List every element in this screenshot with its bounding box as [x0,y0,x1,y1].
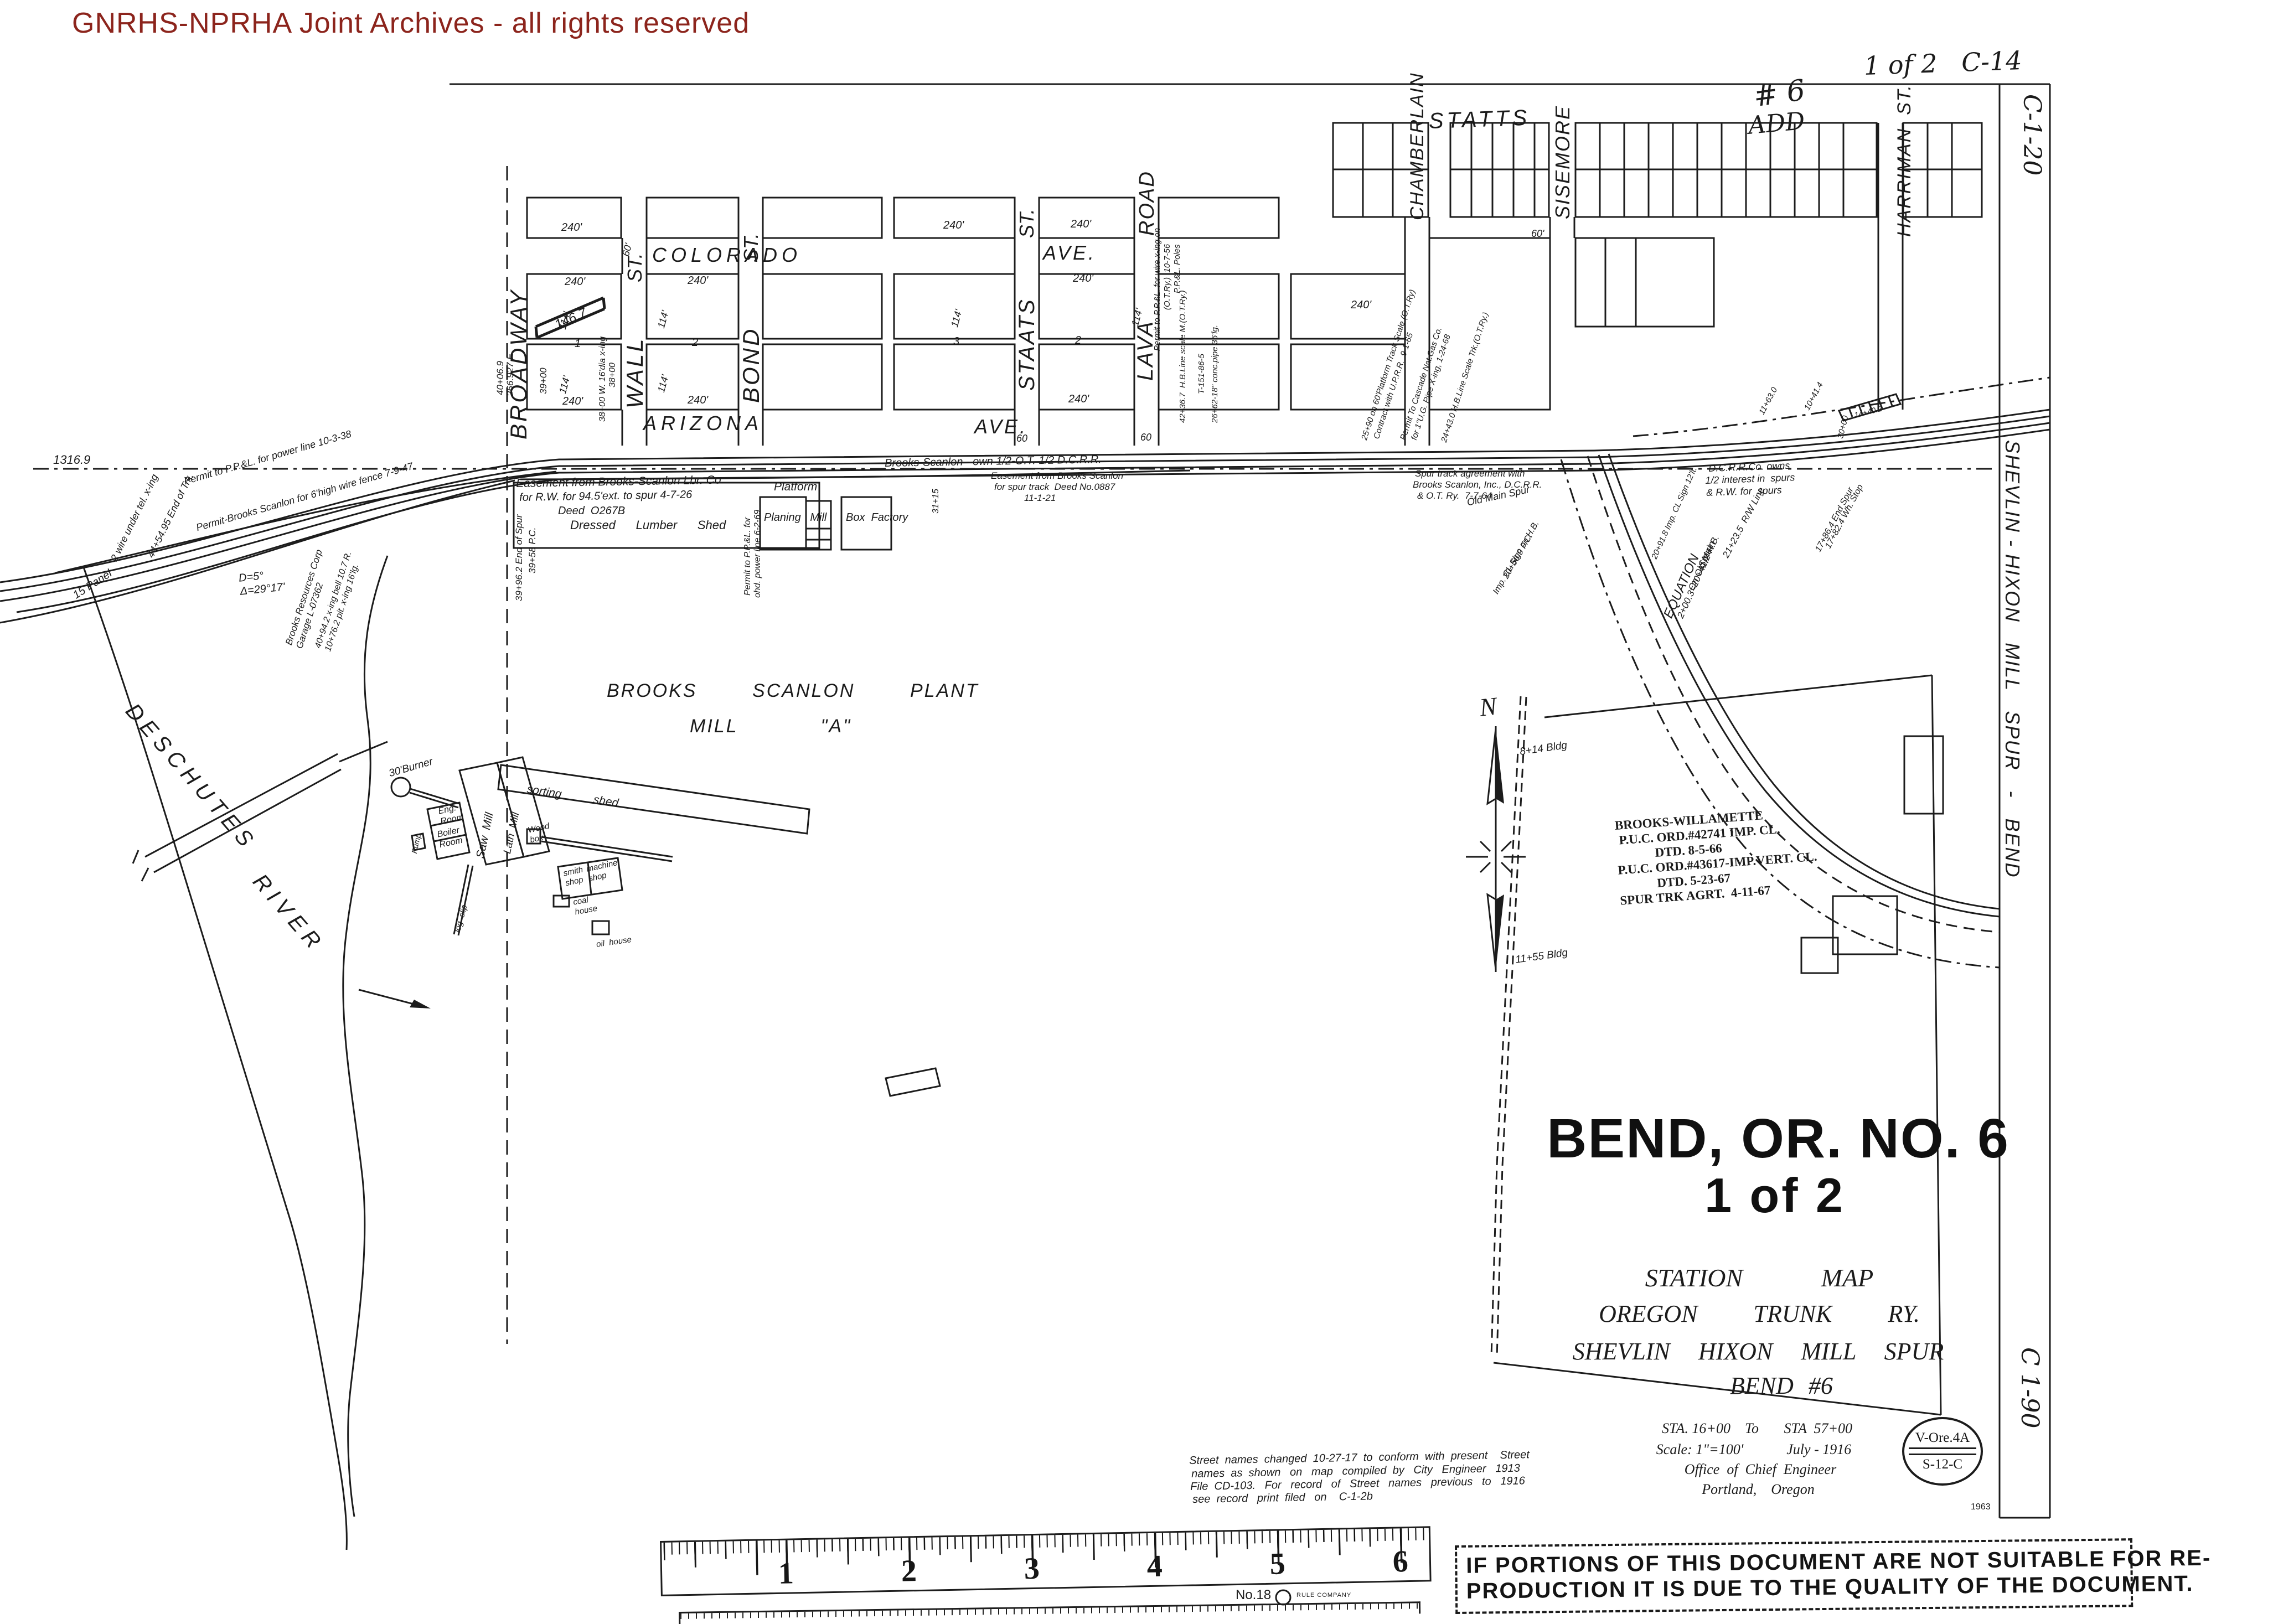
statts-add-lots [1333,123,1982,217]
map-label-ann-3115: 31+15 [931,489,942,514]
map-label-plant-line1: BROOKS SCANLON PLANT [607,680,979,702]
map-label-ann-xing16: 38+00 W. 16'dia x-ing [598,337,608,422]
map-label-hand-sheet: 1 of 2 C-14 [1863,45,2022,81]
map-label-dim-240-r: 240' [1351,299,1371,312]
map-label-ann-endspur-w: 39+96.2 End of Spur [514,515,525,601]
map-label-ave-colorado-ave: AVE. [1043,241,1096,265]
map-label-lot-1: 1 [575,338,581,351]
map-label-ave-colorado: COLORADO [652,244,802,267]
ruler-number-1: 1 [778,1555,794,1591]
map-label-title-scale: Scale: 1"=100' July - 1916 [1656,1441,1851,1459]
map-label-ann-t151: T-151-86-5 [1197,354,1207,394]
map-label-ruler-brand: RULE COMPANY [1296,1592,1351,1599]
map-label-dim-60-4: 60 [1140,432,1151,443]
map-label-ann-easement3: Deed O267B [558,505,625,518]
map-label-ann-ppl-ohd2: ohd. power line 6-2-69 [753,510,763,598]
map-line-art [0,0,2273,1624]
mill-conveyor [541,837,673,861]
map-label-edge-code-top: C-1-20 [2017,94,2046,175]
map-label-dim-240-c1: 240' [562,395,583,408]
seal-top-text: V-Ore.4A [1915,1430,1970,1446]
map-label-dim-60-2: 60' [1531,228,1544,240]
map-label-dim-240-a5: 240' [1071,218,1091,231]
map-label-street-wall: WALL [621,337,649,408]
map-label-dim-240-a1: 240' [561,221,582,235]
map-label-hand-no6: # 6 [1752,74,1807,115]
map-label-bldg-smith: smith shop [562,865,586,888]
blocks-lower-right [1429,238,1714,410]
map-label-dim-240-c2: 240' [688,394,708,407]
map-label-addition-statts: STATTS [1428,105,1531,135]
quality-disclaimer-stamp: IF PORTIONS OF THIS DOCUMENT ARE NOT SUI… [1455,1538,2133,1614]
map-label-dim-240-b1: 240' [565,276,585,289]
ruler-number-4: 4 [1146,1549,1163,1585]
blocks-row-a [527,198,1279,238]
blocks-row-b [527,274,1405,339]
map-label-dim-240-b5: 240' [1073,272,1093,286]
ruler-number-6: 6 [1392,1544,1408,1580]
map-label-bldg-planing: Planing Mill [764,511,826,525]
map-label-street-staats-st: ST. [1015,209,1039,238]
map-label-ann-concpipe: 26+62-18" conc.pipe 36'lg. [1210,325,1220,423]
map-label-title-oregon-trunk: OREGON TRUNK RY. [1599,1300,1920,1328]
map-label-ave-arizona: ARIZONA [643,412,763,435]
ruler-brand-logo [1276,1590,1290,1605]
map-label-lot-2: 2 [692,337,698,350]
map-label-street-chamberlain: CHAMBERLAIN [1406,72,1428,220]
scanned-station-map: GNRHS-NPRHA Joint Archives - all rights … [0,0,2273,1624]
map-label-ann-curve-d5: D=5° Δ=29°17' [238,567,286,598]
map-label-compass-n: N [1478,691,1498,723]
map-label-street-harriman: HARRIMAN ST. [1893,84,1915,237]
seal-divider [1909,1447,1976,1455]
map-label-plant-line2: MILL "A" [690,715,851,737]
map-label-title-portland: Portland, Oregon [1702,1481,1814,1498]
map-label-dim-60-3: 60 [1016,433,1027,444]
ruler-number-2: 2 [901,1553,917,1589]
map-label-ann-agreement1: Spur track agreement with [1415,468,1525,479]
map-label-ann-easespur3: 11-1-21 [1024,493,1056,504]
map-label-dim-240-a3: 240' [943,219,964,232]
map-label-street-bond: BOND [737,327,765,403]
map-label-edge-code-bottom: C 1-90 [2015,1347,2044,1429]
map-label-ruler-model: No.18 [1236,1587,1271,1603]
map-label-dim-240-b2: 240' [688,275,708,288]
map-label-title-office: Office of Chief Engineer [1685,1461,1836,1478]
map-label-ann-hbline-1: 42+36.7 H.B.Line scale M.(O.T.Ry.) [1178,290,1188,423]
map-label-title-bend6: BEND #6 [1730,1372,1833,1400]
map-label-lot-3: 3 [953,335,959,349]
map-label-ann-easespur2: for spur track Deed No.0887 [994,482,1115,493]
map-label-bldg-platform: Platform [774,480,817,494]
map-label-ann-ppl-ohd1: Permit to P.P.&L. for [743,517,753,596]
map-label-seal-year: 1963 [1971,1502,1991,1513]
coal-house-building [554,896,569,907]
river-east-bank [343,556,388,1517]
map-label-ann-brooks-willamette: BROOKS-WILLAMETTE P.U.C. ORD.#42741 IMP.… [1614,804,1820,908]
engine-house-building [886,1068,940,1096]
burner-circle [391,778,410,797]
ruler-number-5: 5 [1269,1546,1285,1582]
map-label-ann-1316: 1316.9 [53,453,90,467]
ruler-number-3: 3 [1024,1551,1040,1587]
file-seal-stamp: V-Ore.4A S-12-C [1902,1417,1983,1486]
oil-house-building [592,921,609,934]
map-label-ann-3900: 39+00 [538,368,549,394]
map-label-bldg-dressed: Dressed Lumber Shed [570,518,726,532]
map-label-title-station-map: STATION MAP [1645,1263,1873,1293]
property-buildings [1801,736,1943,973]
river-arrow-head [410,1000,431,1008]
map-label-street-staats: STAATS [1014,298,1040,391]
map-label-title-shevlin: SHEVLIN HIXON MILL SPUR [1573,1337,1944,1366]
map-label-ann-3958: 39+58 P.C. [527,527,538,573]
map-label-lot-2b: 2 [1075,334,1081,348]
map-label-ann-easespur1: Easement from Brooks Scanlon [991,470,1123,482]
map-label-ann-266927: 266.927 E [505,353,516,396]
map-label-stamp-1of2: 1 of 2 [1704,1167,1845,1224]
map-label-bldg-boxfactory: Box Factory [846,511,908,525]
map-label-dim-240-c5: 240' [1068,393,1089,406]
street-edge-stubs [622,123,1903,446]
map-label-title-sta: STA. 16+00 To STA 57+00 [1662,1420,1852,1437]
map-label-street-sisemore: SISEMORE [1551,105,1574,219]
map-label-edge-title: SHEVLIN - HIXON MILL SPUR - BEND [2001,440,2024,878]
map-label-ann-3800: 38+00 [608,363,618,387]
map-label-stamp-bend-no6: BEND, OR. NO. 6 [1547,1106,2009,1171]
seal-bottom-text: S-12-C [1923,1457,1962,1472]
map-label-ann-ppl-wire2: (O.T.Ry.) 10-7-56 [1163,244,1172,310]
archive-watermark: GNRHS-NPRHA Joint Archives - all rights … [72,7,750,40]
map-label-ann-ppl-wire1: Permit to P.P.&L. for wire x-ing on [1153,228,1163,351]
map-label-street-lava-road: ROAD [1135,170,1160,236]
map-label-bldg-coal: coal house [572,894,598,917]
map-label-street-wall-st: ST. [623,253,647,282]
map-label-ann-ppl-poles: P.P.&L. Poles [1172,244,1182,293]
